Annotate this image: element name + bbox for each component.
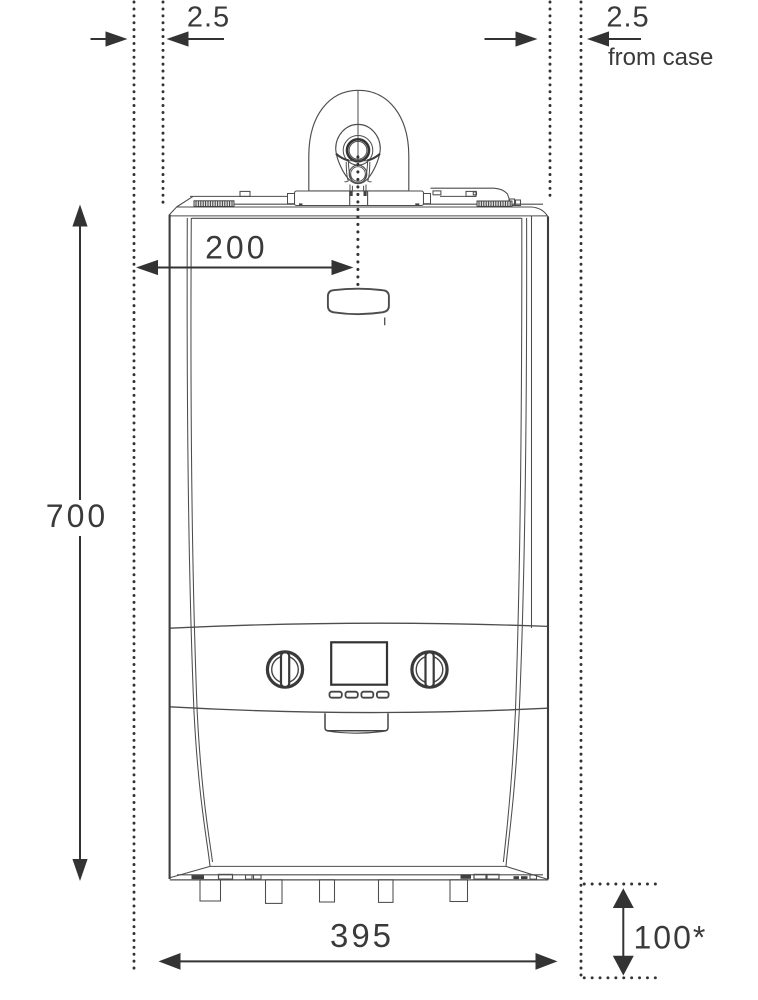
- svg-text:200: 200: [205, 229, 267, 265]
- svg-text:2.5: 2.5: [606, 1, 649, 33]
- svg-text:700: 700: [46, 498, 108, 534]
- svg-text:2.5: 2.5: [187, 1, 230, 33]
- svg-text:from case: from case: [608, 44, 713, 71]
- svg-text:100*: 100*: [634, 920, 708, 956]
- svg-text:395: 395: [330, 917, 394, 954]
